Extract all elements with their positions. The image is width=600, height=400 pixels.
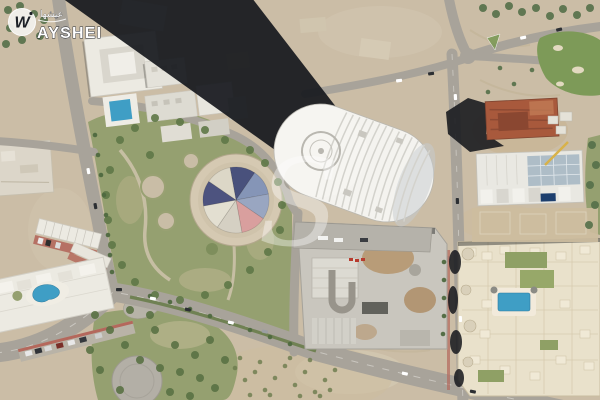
- logo-dot: [29, 12, 32, 15]
- sand-bunker: [572, 67, 584, 74]
- aerial-imagery: S W عيشها AYSHEI: [0, 0, 600, 400]
- satellite-map-view: S W عيشها AYSHEI: [0, 0, 600, 400]
- brand-arabic-name: عيشها: [40, 10, 63, 20]
- sand-bunker: [556, 82, 564, 87]
- construction-dirt: [404, 287, 436, 313]
- vehicle: [360, 238, 368, 242]
- car: [459, 316, 462, 322]
- dirt-lot: [472, 208, 598, 242]
- courtyard-lawn: [520, 270, 554, 288]
- dark-structure: [362, 302, 388, 314]
- southeast-residential-complex: [448, 238, 600, 396]
- swimming-pool: [109, 99, 132, 121]
- car: [454, 94, 458, 100]
- gravel-pad: [299, 17, 326, 33]
- construction-dirt: [353, 324, 377, 340]
- rooftop-pool-navy: [541, 193, 556, 202]
- brand-name: AYSHEI: [37, 25, 102, 42]
- watermark-letter: S: [258, 135, 340, 274]
- courtyard-lawn: [505, 252, 547, 268]
- car: [456, 198, 459, 204]
- courtyard-lawn: [478, 370, 504, 382]
- sand-bunker: [553, 45, 563, 51]
- logo-monogram-icon: W: [14, 15, 31, 32]
- industrial-building: [476, 150, 584, 206]
- courtyard-pool: [498, 293, 530, 311]
- intersection: [460, 48, 476, 64]
- car: [116, 288, 122, 291]
- courtyard-lawn: [540, 340, 558, 350]
